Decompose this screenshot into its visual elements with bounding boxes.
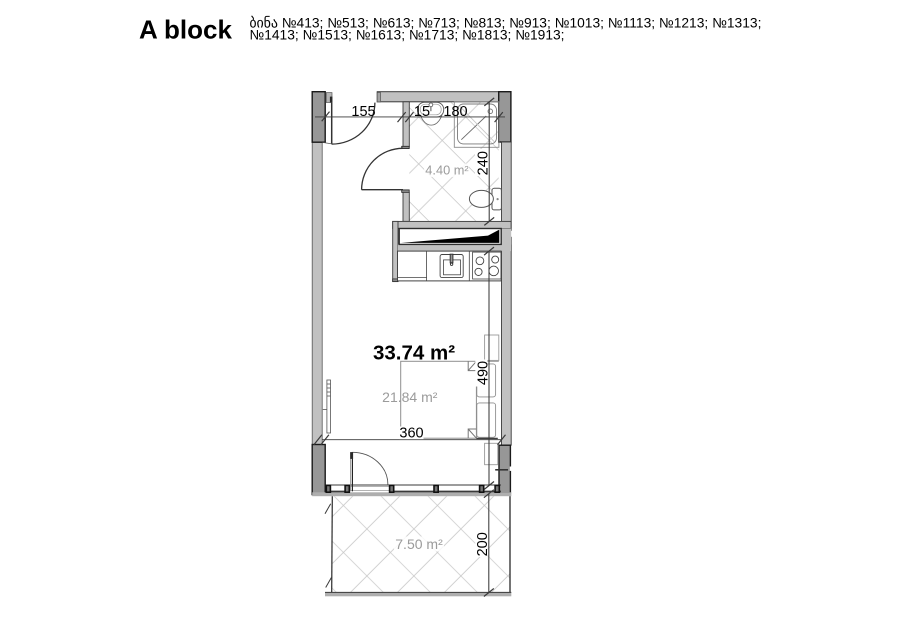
svg-text:21.84 m²: 21.84 m²: [382, 389, 438, 405]
svg-text:360: 360: [399, 425, 423, 441]
svg-text:240: 240: [476, 151, 492, 175]
svg-text:4.40 m²: 4.40 m²: [425, 163, 469, 178]
svg-text:15: 15: [414, 104, 430, 120]
svg-text:180: 180: [443, 104, 467, 120]
svg-text:A block: A block: [139, 15, 232, 45]
svg-text:155: 155: [351, 104, 375, 120]
svg-text:490: 490: [476, 361, 492, 385]
svg-text:33.74 m²: 33.74 m²: [373, 341, 455, 364]
svg-text:200: 200: [475, 532, 491, 556]
svg-text:№1413; №1513; №1613; №1713; №1: №1413; №1513; №1613; №1713; №1813; №1913…: [249, 28, 564, 43]
svg-text:7.50 m²: 7.50 m²: [395, 536, 443, 552]
